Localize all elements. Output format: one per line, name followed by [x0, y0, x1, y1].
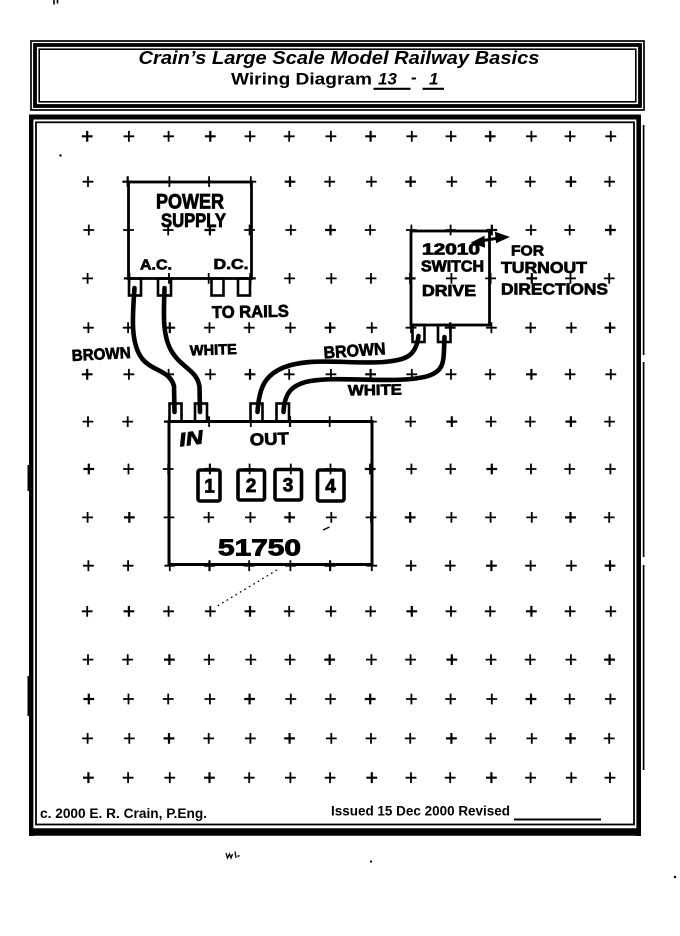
- svg-text:1: 1: [204, 477, 215, 498]
- svg-text:Wiring Diagram: Wiring Diagram: [231, 71, 372, 89]
- svg-text:TO RAILS: TO RAILS: [212, 302, 289, 322]
- svg-text:1: 1: [429, 70, 438, 89]
- svg-text:OUT: OUT: [249, 429, 289, 449]
- svg-text:A.C.: A.C.: [140, 258, 172, 274]
- svg-text:13: 13: [378, 70, 397, 89]
- svg-text:12010: 12010: [422, 242, 480, 259]
- svg-text:DIRECTIONS: DIRECTIONS: [501, 282, 608, 299]
- svg-text:D.C.: D.C.: [214, 257, 249, 273]
- svg-text:Issued 15 Dec 2000 Revised: Issued 15 Dec 2000 Revised: [331, 804, 510, 819]
- svg-text:TURNOUT: TURNOUT: [501, 260, 587, 277]
- svg-text:SUPPLY: SUPPLY: [161, 210, 226, 232]
- svg-text:2: 2: [246, 476, 257, 497]
- svg-text:c. 2000 E. R. Crain, P.Eng.: c. 2000 E. R. Crain, P.Eng.: [40, 806, 207, 821]
- svg-text:BROWN: BROWN: [71, 345, 131, 365]
- svg-text:4: 4: [325, 477, 336, 498]
- svg-text:51750: 51750: [218, 535, 301, 561]
- svg-text:DRIVE: DRIVE: [422, 283, 476, 300]
- svg-text:-: -: [411, 68, 417, 87]
- svg-text:WHITE: WHITE: [348, 382, 402, 400]
- svg-text:IN: IN: [178, 427, 206, 451]
- svg-text:Crain’s Large Scale Model Rail: Crain’s Large Scale Model Railway Basics: [139, 47, 540, 68]
- svg-text:SWITCH: SWITCH: [421, 259, 484, 276]
- svg-text:FOR: FOR: [511, 243, 544, 260]
- svg-text:3: 3: [283, 476, 294, 497]
- svg-text:WHITE: WHITE: [190, 342, 238, 360]
